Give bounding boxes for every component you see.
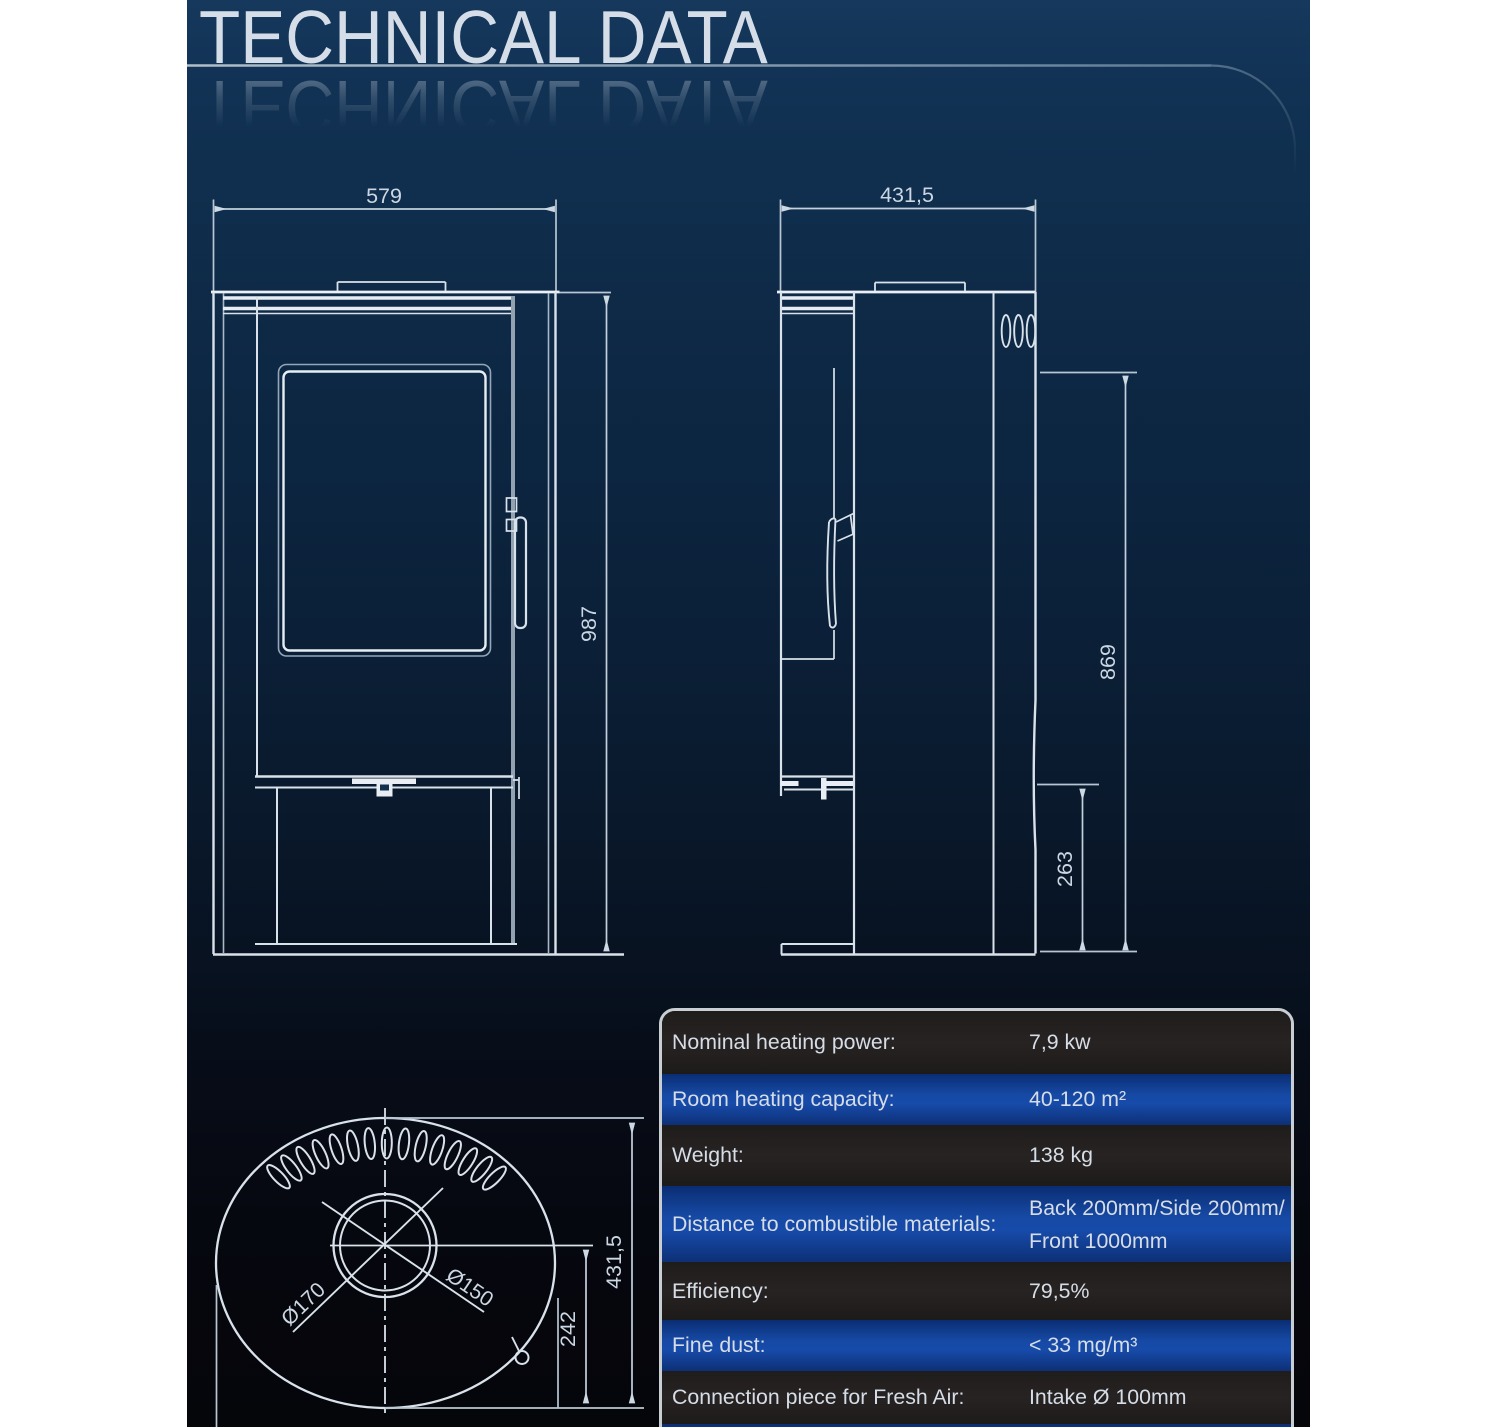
svg-text:Ø150: Ø150: [442, 1264, 497, 1312]
svg-text:431,5: 431,5: [602, 1235, 626, 1289]
svg-text:579: 579: [366, 184, 402, 208]
svg-text:869: 869: [1096, 644, 1120, 680]
svg-text:987: 987: [577, 606, 601, 642]
svg-text:431,5: 431,5: [880, 183, 934, 207]
svg-text:242: 242: [556, 1311, 580, 1347]
svg-text:263: 263: [1053, 851, 1077, 887]
